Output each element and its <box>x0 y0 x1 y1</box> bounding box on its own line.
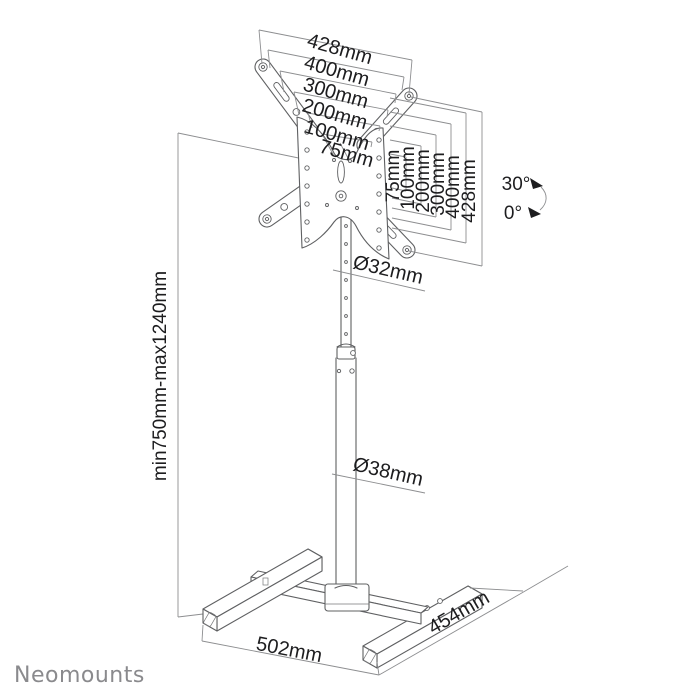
tilt-arrow-bottom-icon <box>528 207 541 218</box>
pole-diameter-callouts: Ø32mm Ø38mm <box>332 251 425 493</box>
pole-clamp <box>337 344 355 359</box>
brand-logo: Neomounts <box>14 663 145 688</box>
product-diagram: min750mm-max1240mm <box>0 0 700 700</box>
tilt-max-label: 30° <box>502 174 531 195</box>
dim-label-height-range: min750mm-max1240mm <box>150 271 171 481</box>
dim-label-right-428: 428mm <box>459 159 480 222</box>
tilt-arc <box>540 187 546 210</box>
base <box>203 549 482 668</box>
technical-diagram-page: min750mm-max1240mm <box>0 0 700 700</box>
dim-label-base-width: 502mm <box>254 633 324 667</box>
tilt-indicator: 30° 0° <box>502 174 546 224</box>
tilt-min-label: 0° <box>504 203 522 224</box>
base-centre-block <box>325 584 369 611</box>
